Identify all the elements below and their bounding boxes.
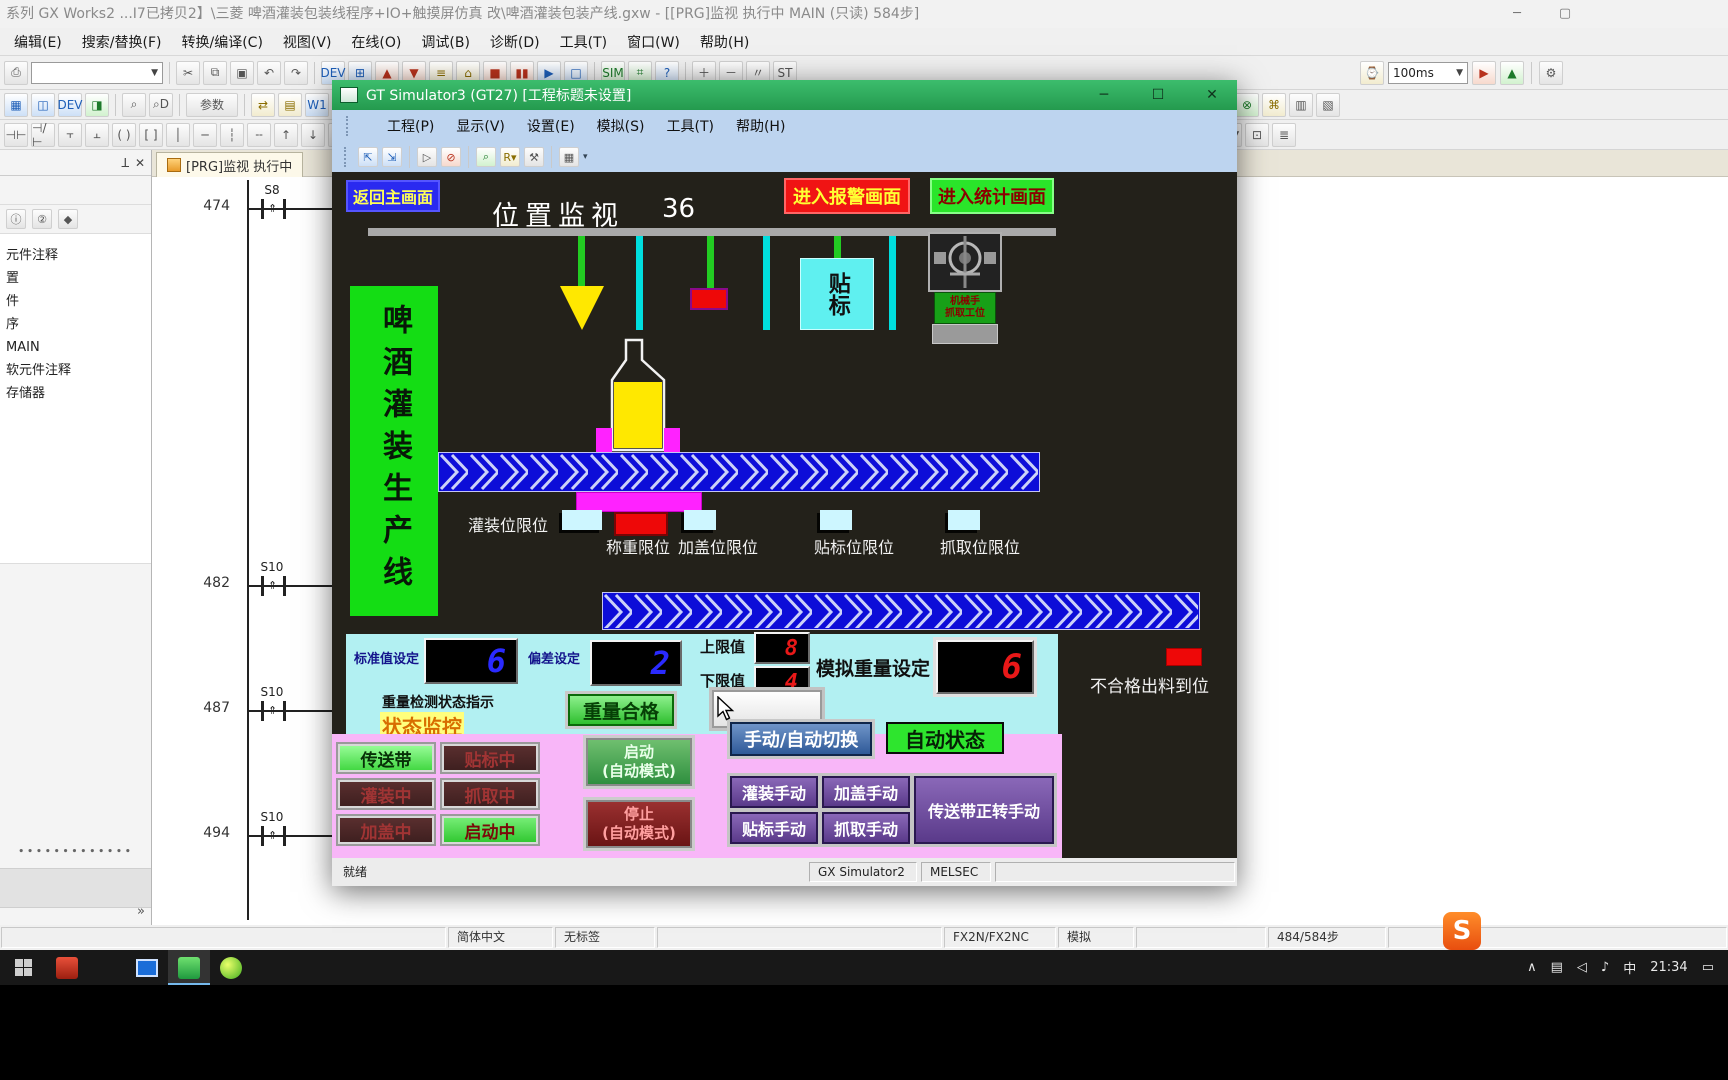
menu-view[interactable]: 视图(V): [273, 29, 342, 55]
gt-status-device: MELSEC: [921, 862, 991, 882]
ladder-hline-icon[interactable]: ─: [193, 123, 217, 147]
sensor-label-grabbing: 抓取位限位: [940, 534, 1020, 558]
guide-rod-3: [889, 236, 896, 330]
paste-icon[interactable]: ▣: [230, 61, 254, 85]
deviation-value-display[interactable]: 2: [590, 640, 682, 686]
tree-item-setting[interactable]: 置: [6, 267, 151, 290]
ladder-contact-label: S8: [252, 183, 292, 197]
hmi-canvas: 返回主画面 位置监视 36 进入报警画面 进入统计画面 贴标: [332, 172, 1237, 858]
system-tray: ∧ ▤ ◁ ♪ 中 21:34 ▭: [1527, 958, 1728, 977]
weigh-sensor-block: [614, 512, 668, 536]
ladder-coil-icon[interactable]: ( ): [112, 123, 136, 147]
start-auto-button[interactable]: 启动 (自动模式): [586, 738, 692, 786]
status-empty: [657, 927, 942, 948]
maximize-button[interactable]: ▢: [1548, 4, 1582, 24]
reject-label: 不合格出料到位: [1090, 672, 1209, 697]
crossref-icon[interactable]: ⇄: [251, 93, 275, 117]
status-language: 简体中文: [448, 927, 553, 948]
indicator-capping[interactable]: 加盖中: [336, 814, 436, 846]
clock[interactable]: 21:34: [1650, 960, 1687, 975]
lower-limit-label: 下限值: [700, 670, 745, 691]
status-empty: [1388, 927, 1727, 948]
status-cpu: FX2N/FX2NC: [944, 927, 1056, 948]
app1-icon: [56, 957, 78, 979]
sensor-indicator-grabbing: [948, 510, 980, 530]
find-device-icon[interactable]: ⌕D: [149, 93, 173, 117]
gt-menu-project[interactable]: 工程(P): [376, 112, 445, 140]
gt-statusbar: 就绪 GX Simulator2 MELSEC: [332, 858, 1237, 886]
sensor-label-weighing: 称重限位: [606, 534, 670, 558]
watch-icon[interactable]: ⌚: [1360, 61, 1384, 85]
gt-play-icon[interactable]: ▷: [417, 147, 437, 167]
manual-grabbing-button[interactable]: 抓取手动: [822, 812, 910, 844]
battery-icon[interactable]: ▤: [1551, 960, 1563, 975]
gt-status-simulator: GX Simulator2: [809, 862, 917, 882]
right-toolbar-icon[interactable]: ⌘: [1262, 93, 1286, 117]
gt-menu-help[interactable]: 帮助(H): [725, 112, 796, 140]
tree-item-comment[interactable]: 元件注释: [6, 244, 151, 267]
standard-label: 标准值设定: [354, 648, 419, 667]
dock-lower-panel: [0, 868, 151, 908]
gt-menubar: 工程(P) 显示(V) 设置(E) 模拟(S) 工具(T) 帮助(H): [332, 110, 1237, 142]
reject-indicator: [1166, 648, 1202, 666]
status-steps: 484/584步: [1268, 927, 1386, 948]
indicator-grabbing[interactable]: 抓取中: [440, 778, 540, 810]
status-label: 无标签: [555, 927, 655, 948]
hmi-back-button[interactable]: 返回主画面: [346, 180, 440, 212]
robot-machine-body: [932, 324, 998, 344]
app4-ball-icon: [220, 957, 242, 979]
bottle-clamp-left: [596, 428, 612, 452]
gt-stop-sim-icon[interactable]: ⊘: [441, 147, 461, 167]
gt-toolbar: ⇱ ⇲ ▷ ⊘ ⌕ R▾ ⚒ ▦ ▾: [332, 142, 1237, 172]
right-toolbar-icon[interactable]: ▥: [1289, 93, 1313, 117]
ladder-application-icon[interactable]: [ ]: [139, 123, 163, 147]
stop-line1: 停止: [624, 805, 654, 825]
menu-window[interactable]: 窗口(W): [617, 29, 690, 55]
deviation-label: 偏差设定: [528, 648, 580, 667]
gt-script-icon[interactable]: R▾: [500, 147, 520, 167]
right-ladder-icon[interactable]: ⊡: [1245, 123, 1269, 147]
ladder-tab-label: [PRG]监视 执行中: [186, 156, 292, 175]
start-line1: 启动: [624, 743, 654, 763]
manual-capping-button[interactable]: 加盖手动: [822, 776, 910, 808]
gt-titlebar: GT Simulator3 (GT27) [工程标题未设置] ─ ☐ ✕: [332, 80, 1237, 110]
gt-save-icon[interactable]: ⇲: [382, 147, 402, 167]
window-cascade-icon[interactable]: ▦: [4, 93, 28, 117]
sensor-indicator-labeling: [820, 510, 852, 530]
gx-titlebar: 系列 GX Works2 ...I7已拷贝2】\三菱 啤酒灌装包装线程序+IO+…: [0, 0, 1728, 28]
labeler-rod: [834, 236, 841, 258]
tree-item-device-comment[interactable]: 软元件注释: [6, 359, 151, 382]
taskbar: ∧ ▤ ◁ ♪ 中 21:34 ▭: [0, 950, 1728, 985]
ladder-pulse-up-icon[interactable]: ↑: [274, 123, 298, 147]
indicator-filling[interactable]: 灌装中: [336, 778, 436, 810]
sim-weight-label: 模拟重量设定: [816, 654, 930, 681]
manual-labeling-button[interactable]: 贴标手动: [730, 812, 818, 844]
gt-maximize-button[interactable]: ☐: [1144, 85, 1172, 105]
network-icon[interactable]: ◁: [1577, 960, 1587, 975]
scan-time-combo[interactable]: 100ms▼: [1388, 62, 1468, 84]
weigh-platform: [576, 492, 702, 512]
robot-label-line2: 抓取工位: [945, 308, 985, 321]
robot-label-line1: 机械手: [950, 296, 980, 309]
ladder-contact[interactable]: ⇑: [255, 199, 295, 219]
sogou-ime-icon[interactable]: S: [1443, 912, 1481, 950]
tree-item-part[interactable]: 件: [6, 290, 151, 313]
run-icon[interactable]: ▶: [1472, 61, 1496, 85]
ladder-contact[interactable]: ⇑: [255, 701, 295, 721]
mode-switch-button[interactable]: 手动/自动切换: [730, 722, 872, 756]
ladder-pulse-down-icon[interactable]: ↓: [301, 123, 325, 147]
menu-tools[interactable]: 工具(T): [550, 29, 617, 55]
ladder-parallel-closed-icon[interactable]: ⫠: [85, 123, 109, 147]
start-line2: (自动模式): [602, 762, 676, 782]
filler-nozzle-icon: [560, 286, 604, 330]
copy-icon[interactable]: ⧉: [203, 61, 227, 85]
project-dock: ꓕ ✕ ⓘ ② ◆ 元件注释 置 件 序 MAIN 软元件注释 存储器 ∙∙∙∙…: [0, 150, 152, 925]
labeling-station-text: 贴标: [823, 272, 851, 316]
minimize-button[interactable]: ─: [1500, 4, 1534, 24]
stop-auto-button[interactable]: 停止 (自动模式): [586, 800, 692, 848]
ladder-delete-vline-icon[interactable]: ┆: [220, 123, 244, 147]
gt-simulator-window: GT Simulator3 (GT27) [工程标题未设置] ─ ☐ ✕ 工程(…: [332, 80, 1237, 886]
gt-close-button[interactable]: ✕: [1198, 85, 1226, 105]
bottle-clamp-right: [664, 428, 680, 452]
gt-window-title: GT Simulator3 (GT27) [工程标题未设置]: [366, 85, 631, 105]
notification-icon[interactable]: ▭: [1702, 960, 1714, 975]
hmi-screen-number: 36: [662, 194, 695, 224]
screen: 系列 GX Works2 ...I7已拷贝2】\三菱 啤酒灌装包装线程序+IO+…: [0, 0, 1728, 1080]
dock-splitter[interactable]: ∙∙∙∙∙∙∙∙∙∙∙∙∙: [0, 844, 151, 868]
ladder-step-number: 474: [170, 198, 230, 214]
menu-debug[interactable]: 调试(B): [411, 29, 480, 55]
ladder-tab-icon: [167, 158, 181, 172]
robot-gear-graphic: [930, 234, 1000, 290]
project-window-icon[interactable]: DEV: [58, 93, 82, 117]
menu-help[interactable]: 帮助(H): [690, 29, 759, 55]
toolbar-overflow-icon[interactable]: ▾: [583, 152, 588, 162]
manual-filling-button[interactable]: 灌装手动: [730, 776, 818, 808]
auto-status-indicator: 自动状态: [886, 722, 1004, 754]
gt-open-icon[interactable]: ⇱: [358, 147, 378, 167]
gt-menu-simulate[interactable]: 模拟(S): [586, 112, 656, 140]
volume-icon[interactable]: ♪: [1601, 960, 1609, 975]
mouse-cursor: [716, 696, 738, 722]
dock-refresh-icon[interactable]: ②: [32, 209, 52, 229]
weight-ok-button[interactable]: 重量合格: [568, 694, 674, 726]
right-toolbar-icon[interactable]: ⊗: [1235, 93, 1259, 117]
gt-keyboard-icon[interactable]: ▦: [559, 147, 579, 167]
ladder-contact-label: S10: [252, 685, 292, 699]
taskbar-app-1[interactable]: [46, 950, 88, 985]
gt-option-icon[interactable]: ⚒: [524, 147, 544, 167]
taskbar-app-3[interactable]: [168, 950, 210, 985]
manual-conveyor-fwd-button[interactable]: 传送带正转手动: [914, 776, 1054, 844]
sim-weight-display[interactable]: 6: [936, 640, 1034, 694]
scan-time-value: 100ms: [1393, 66, 1434, 80]
cut-icon[interactable]: ✂: [176, 61, 200, 85]
taskbar-app-4[interactable]: [210, 950, 252, 985]
dock-info-icon[interactable]: ⓘ: [6, 209, 26, 229]
tree-item-main[interactable]: MAIN: [6, 336, 151, 359]
gt-status-ready: 就绪: [334, 862, 805, 882]
gt-app-icon: [340, 87, 358, 103]
weight-status-label: 重量检测状态指示: [382, 692, 494, 712]
devicelist-icon[interactable]: ▤: [278, 93, 302, 117]
gx-window-title: 系列 GX Works2 ...I7已拷贝2】\三菱 啤酒灌装包装线程序+IO+…: [6, 6, 919, 22]
robot-machine-frame: [928, 232, 1002, 292]
ladder-step-number: 494: [170, 825, 230, 841]
taskbar-app-2[interactable]: [126, 950, 168, 985]
start-button[interactable]: [0, 950, 46, 985]
standard-value-display[interactable]: 6: [424, 638, 518, 684]
close-icon[interactable]: ✕: [135, 156, 145, 170]
windows-logo-icon: [15, 959, 32, 976]
undo-icon[interactable]: ↶: [257, 61, 281, 85]
ladder-step-number: 482: [170, 575, 230, 591]
ladder-contact-icon[interactable]: ⊣⊢: [4, 123, 28, 147]
gt-menu-set[interactable]: 设置(E): [516, 112, 586, 140]
ladder-parallel-icon[interactable]: ⫟: [58, 123, 82, 147]
ladder-tab[interactable]: [PRG]监视 执行中: [156, 152, 303, 177]
ladder-contact-label: S10: [252, 560, 292, 574]
status-empty: [1136, 927, 1266, 948]
conveyor-1: [438, 452, 1040, 492]
parameter-button[interactable]: 参数: [186, 93, 238, 117]
ime-indicator[interactable]: 中: [1623, 958, 1636, 977]
menu-search[interactable]: 搜索/替换(F): [72, 29, 172, 55]
sensor-label-labeling: 贴标位限位: [814, 534, 894, 558]
ladder-vline-icon[interactable]: │: [166, 123, 190, 147]
menubar-grip: [346, 116, 370, 136]
gt-menu-tool[interactable]: 工具(T): [655, 112, 724, 140]
sensor-label-capping: 加盖位限位: [678, 534, 758, 558]
app2-monitor-icon: [136, 959, 158, 977]
status-empty: [1, 927, 446, 948]
upper-limit-label: 上限值: [700, 636, 745, 657]
upper-lim-display[interactable]: 8: [754, 632, 810, 664]
tray-chevron-icon[interactable]: ∧: [1527, 960, 1537, 975]
tool-extra-icon[interactable]: ⚙: [1539, 61, 1563, 85]
watch1-icon[interactable]: W1: [305, 93, 329, 117]
gt-minimize-button[interactable]: ─: [1090, 85, 1118, 105]
window-tile-icon[interactable]: ◫: [31, 93, 55, 117]
app3-gx-icon: [178, 957, 200, 979]
tree-item-device-memory[interactable]: 存储器: [6, 382, 151, 405]
menu-edit[interactable]: 编辑(E): [4, 29, 72, 55]
capper-head: [690, 288, 728, 310]
banner-text: 啤酒灌装生产线: [372, 304, 416, 598]
check-icon[interactable]: ▲: [1500, 61, 1524, 85]
ladder-step-number: 487: [170, 700, 230, 716]
hmi-alarm-button[interactable]: 进入报警画面: [784, 178, 910, 214]
menu-convert[interactable]: 转换/编译(C): [171, 29, 272, 55]
project-tree: 元件注释 置 件 序 MAIN 软元件注释 存储器: [0, 234, 151, 564]
gt-snapshot-icon[interactable]: ⌕: [476, 147, 496, 167]
toolbar-grip: [344, 147, 348, 167]
menu-online[interactable]: 在线(O): [341, 29, 411, 55]
indicator-running[interactable]: 启动中: [440, 814, 540, 846]
ladder-contact-label: S10: [252, 810, 292, 824]
sensor-indicator-filling: [562, 510, 602, 530]
conveyor-2: [602, 592, 1200, 630]
stop-line2: (自动模式): [602, 824, 676, 844]
indicator-conveyor[interactable]: 传送带: [336, 742, 436, 774]
hmi-stats-button[interactable]: 进入统计画面: [930, 178, 1054, 214]
label-window-icon[interactable]: ◨: [85, 93, 109, 117]
find-icon[interactable]: ⌕: [122, 93, 146, 117]
gt-status-empty: [995, 862, 1235, 882]
tree-item-program[interactable]: 序: [6, 313, 151, 336]
ladder-contact[interactable]: ⇑: [255, 576, 295, 596]
ladder-left-rail: [247, 180, 249, 920]
production-line-banner: 啤酒灌装生产线: [350, 286, 438, 616]
print-icon[interactable]: ⎙: [4, 61, 28, 85]
capper-rod: [707, 236, 714, 288]
dock-filter-icon[interactable]: ◆: [58, 209, 78, 229]
guide-rod-1: [636, 236, 643, 330]
ladder-contact[interactable]: ⇑: [255, 826, 295, 846]
right-ladder-icon[interactable]: ≣: [1272, 123, 1296, 147]
labeling-station: 贴标: [800, 258, 874, 330]
workspace-combo[interactable]: ▼: [31, 62, 163, 84]
menu-diagnostics[interactable]: 诊断(D): [480, 29, 550, 55]
filler-rod: [578, 236, 585, 286]
redo-icon[interactable]: ↷: [284, 61, 308, 85]
robot-station-label: 机械手 抓取工位: [934, 292, 996, 324]
gx-menubar: 编辑(E) 搜索/替换(F) 转换/编译(C) 视图(V) 在线(O) 调试(B…: [0, 28, 1728, 56]
ladder-contact-closed-icon[interactable]: ⊣/⊢: [31, 123, 55, 147]
right-toolbar-icon[interactable]: ▧: [1316, 93, 1340, 117]
sensor-label-filling: 灌装位限位: [468, 512, 548, 536]
guide-rod-2: [763, 236, 770, 330]
ladder-delete-hline-icon[interactable]: ╌: [247, 123, 271, 147]
status-mode: 模拟: [1058, 927, 1134, 948]
indicator-labeling[interactable]: 贴标中: [440, 742, 540, 774]
dock-expand-icon[interactable]: »: [137, 904, 145, 919]
pin-icon[interactable]: ꓕ: [122, 156, 129, 170]
sensor-indicator-capping: [684, 510, 716, 530]
gt-menu-view[interactable]: 显示(V): [445, 112, 516, 140]
